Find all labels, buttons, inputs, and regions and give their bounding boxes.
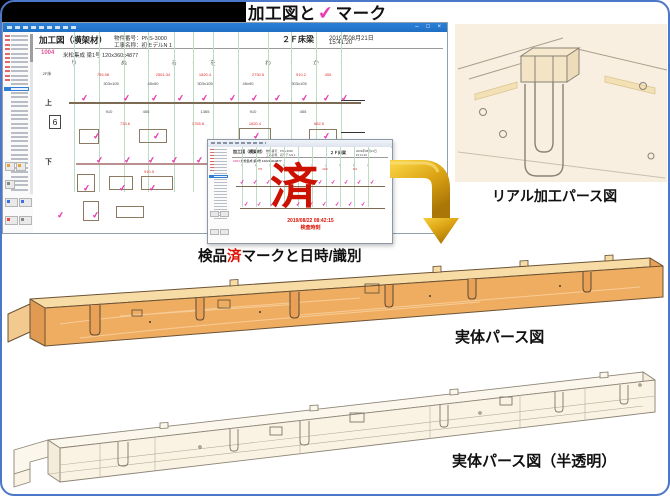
popup-part-list-sidebar: [208, 147, 231, 242]
page-title-prefix: 加工図と: [248, 5, 316, 23]
check-mark[interactable]: ✔: [170, 155, 179, 165]
part-outline: [141, 176, 173, 190]
check-mark[interactable]: ✔: [148, 183, 157, 193]
check-mark[interactable]: ✔: [321, 202, 327, 209]
doc-title: 加工図（横架材）: [39, 34, 107, 46]
popup-titlebar-text: [211, 142, 266, 144]
dimension-text: 455: [143, 109, 150, 114]
caption-transparent-perspective: 実体パース図（半透明）: [452, 450, 616, 471]
sidebar-button-2[interactable]: [16, 162, 26, 171]
check-mark[interactable]: ✔: [150, 93, 159, 103]
popup-sidebar-toolbar: [209, 205, 229, 241]
window-titlebar[interactable]: – □ ×: [3, 23, 447, 32]
part-list-sidebar: [3, 32, 34, 233]
inspection-timestamp-label: 検査時刻: [230, 224, 391, 231]
titlebar-text: [7, 26, 77, 29]
screenshot-root: { "page": { "title": {"prefix": "加工図と", …: [0, 0, 670, 496]
dimension-text: 1765.8: [192, 121, 204, 126]
dimension-text: 303x105: [197, 81, 212, 86]
check-mark[interactable]: ✔: [91, 210, 100, 220]
popup-floor-label: ２Ｆ床梁: [330, 150, 346, 156]
check-mark[interactable]: ✔: [322, 93, 331, 103]
sidebar-toolbar: [4, 159, 32, 231]
dimension-text: 910.5: [144, 169, 154, 174]
grid-line: [193, 32, 194, 192]
check-mark[interactable]: ✔: [118, 183, 127, 193]
gold-arrow: [378, 148, 470, 256]
sidebar-button-4[interactable]: [5, 198, 18, 207]
dimension-text: 455: [325, 72, 332, 77]
dimension-text: 45x90: [148, 81, 159, 86]
sidebar-button-7[interactable]: [19, 216, 32, 225]
dimension-text: 45x90: [243, 81, 254, 86]
dimension-text: 733.6: [120, 121, 130, 126]
caption-inspection: 検品済マークと日時/識別: [198, 245, 362, 266]
check-mark[interactable]: ✔: [176, 93, 185, 103]
check-mark[interactable]: ✔: [152, 131, 161, 141]
sidebar-button-1[interactable]: [5, 162, 15, 171]
dimension-text: 910.2: [296, 72, 306, 77]
check-mark[interactable]: ✔: [195, 155, 204, 165]
check-mark[interactable]: ✔: [340, 93, 349, 103]
grid-line: [99, 32, 100, 192]
dimension-text: 755.98: [97, 72, 109, 77]
transparent-perspective-image: [0, 355, 670, 495]
popup-doc-title: 加工図（横架材）: [233, 149, 265, 155]
grid-line: [368, 147, 369, 207]
beam-line-top: [69, 102, 361, 104]
real-perspective-image: [455, 24, 667, 184]
grid-line: [340, 147, 341, 207]
dimension-text: 303x105: [291, 81, 306, 86]
part-number: 1004: [41, 50, 54, 56]
check-mark[interactable]: ✔: [200, 93, 209, 103]
popup-sidebar-button[interactable]: [210, 229, 219, 235]
check-mark[interactable]: ✔: [82, 183, 91, 193]
dimension-text: 910: [106, 109, 113, 114]
popup-sidebar-button[interactable]: [210, 211, 219, 217]
check-mark[interactable]: ✔: [356, 180, 362, 187]
check-mark[interactable]: ✔: [300, 93, 309, 103]
check-mark[interactable]: ✔: [317, 180, 323, 187]
dimension-text: 755: [258, 168, 262, 171]
row-label-bottom: 下: [45, 157, 52, 167]
check-mark[interactable]: ✔: [122, 93, 131, 103]
title-black-block: [0, 0, 246, 22]
sheet-number: 6: [49, 115, 61, 129]
check-mark[interactable]: ✔: [347, 202, 353, 209]
page-title: 加工図と✔マーク: [248, 0, 387, 22]
inspection-popup-window: 加工図（横架材） 物件番号：PNS-3000 工事名称：初モデルN 1 ２Ｆ床梁…: [207, 139, 393, 244]
check-mark[interactable]: ✔: [250, 93, 259, 103]
dimension-text: 2730.5: [252, 72, 264, 77]
check-mark[interactable]: ✔: [228, 93, 237, 103]
dim-arrow-2: [341, 132, 365, 133]
grid-line: [124, 32, 125, 192]
dimension-text: 910: [353, 168, 357, 171]
grid-line: [326, 147, 327, 207]
check-mark[interactable]: ✔: [239, 180, 245, 187]
check-mark[interactable]: ✔: [80, 93, 89, 103]
dimension-text: 910: [250, 109, 257, 114]
dimension-text: 2561.34: [156, 72, 170, 77]
sidebar-button-3[interactable]: [5, 180, 15, 189]
dimension-text: 1365: [201, 109, 210, 114]
grid-line: [242, 147, 243, 207]
dimension-text: 303x105: [103, 81, 118, 86]
header-divider: [35, 48, 443, 49]
check-mark[interactable]: ✔: [95, 155, 104, 165]
sidebar-button-5[interactable]: [19, 198, 32, 207]
page-title-suffix: マーク: [336, 5, 387, 23]
grid-line: [256, 147, 257, 207]
sidebar-button-6[interactable]: [5, 216, 18, 225]
caption-solid-perspective: 実体パース図: [455, 326, 544, 347]
check-mark[interactable]: ✔: [343, 180, 349, 187]
check-mark[interactable]: ✔: [252, 180, 258, 187]
check-mark[interactable]: ✔: [369, 180, 375, 187]
inspection-done-mark: 済: [270, 163, 318, 211]
dimension-text: 682.5: [314, 121, 324, 126]
dimension-text: 1820.4: [199, 72, 211, 77]
part-outline: [116, 206, 144, 218]
dimension-text: 1820: [322, 168, 328, 171]
caption-real-perspective: リアル加工パース図: [492, 186, 617, 206]
popup-sidebar-button[interactable]: [220, 229, 229, 235]
check-mark[interactable]: ✔: [256, 202, 262, 209]
grid-line: [74, 32, 75, 192]
check-mark[interactable]: ✔: [334, 202, 340, 209]
check-mark[interactable]: ✔: [123, 155, 132, 165]
solid-perspective-image: [0, 252, 670, 362]
check-mark[interactable]: ✔: [330, 180, 336, 187]
dimension-text: 1820.4: [249, 121, 261, 126]
popup-drawing-area: 加工図（横架材） 物件番号：PNS-3000 工事名称：初モデルN 1 ２Ｆ床梁…: [230, 147, 391, 242]
check-mark[interactable]: ✔: [273, 93, 282, 103]
dimension-text: 455: [300, 109, 307, 114]
grid-line: [174, 32, 175, 192]
check-mark[interactable]: ✔: [243, 202, 249, 209]
grid-line: [354, 147, 355, 207]
check-mark[interactable]: ✔: [360, 202, 366, 209]
row-label-top: 上: [45, 98, 52, 108]
check-mark[interactable]: ✔: [92, 131, 101, 141]
done-word: 済: [227, 249, 242, 265]
floor-label: ２Ｆ床梁: [282, 34, 314, 45]
floor-tag: 2F床: [43, 71, 52, 77]
check-mark[interactable]: ✔: [147, 155, 156, 165]
window-control-buttons[interactable]: – □ ×: [415, 24, 444, 31]
popup-sidebar-button[interactable]: [220, 211, 229, 217]
check-mark[interactable]: ✔: [56, 210, 65, 220]
